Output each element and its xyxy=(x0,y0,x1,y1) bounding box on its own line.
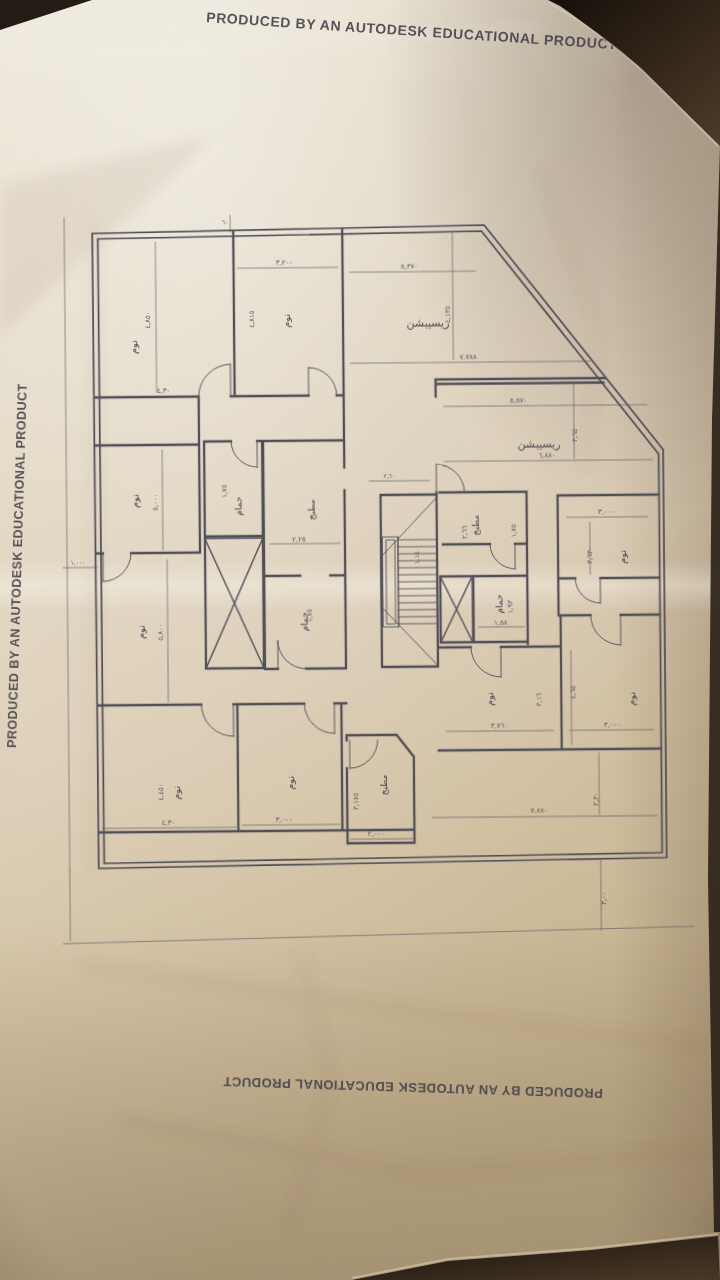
photo-of-floor-plan: PRODUCED BY AN AUTODESK EDUCATIONAL PROD… xyxy=(0,0,720,1280)
floor-plan-photo: PRODUCED BY AN AUTODESK EDUCATIONAL PROD… xyxy=(0,0,720,1280)
vignette xyxy=(0,0,720,1280)
